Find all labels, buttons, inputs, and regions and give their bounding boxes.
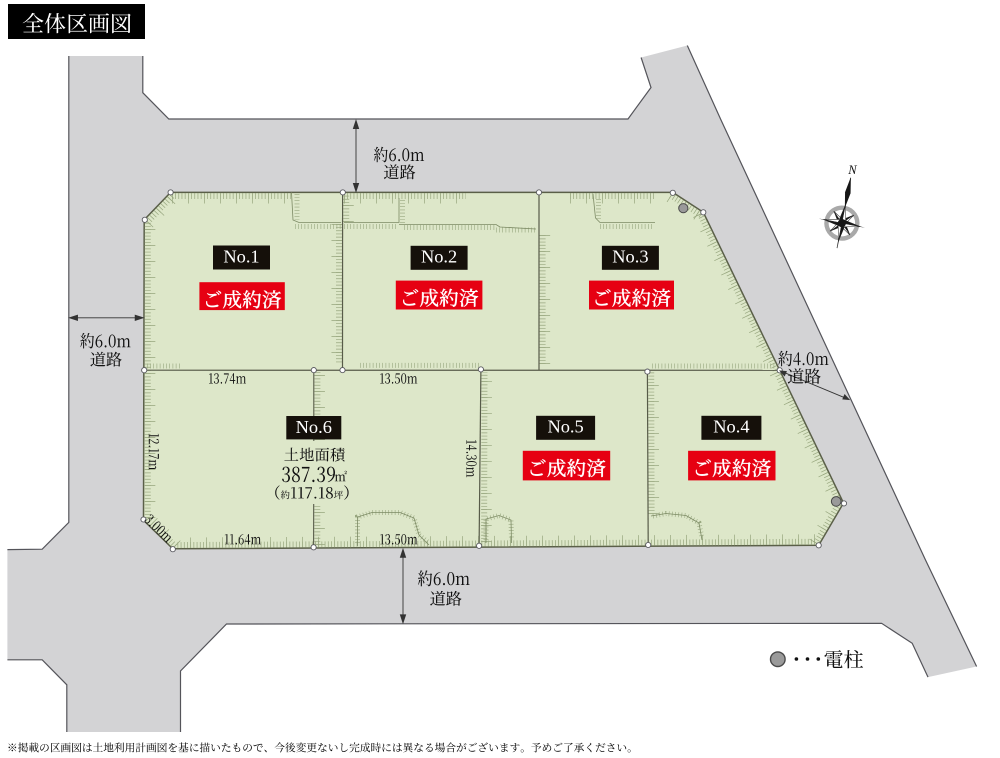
svg-text:No.5: No.5 (547, 417, 583, 437)
svg-text:No.4: No.4 (713, 417, 749, 437)
svg-text:No.2: No.2 (421, 247, 457, 267)
svg-text:No.3: No.3 (612, 247, 648, 267)
svg-text:N: N (847, 163, 857, 177)
svg-text:No.1: No.1 (223, 246, 259, 266)
svg-text:No.6: No.6 (296, 417, 332, 437)
